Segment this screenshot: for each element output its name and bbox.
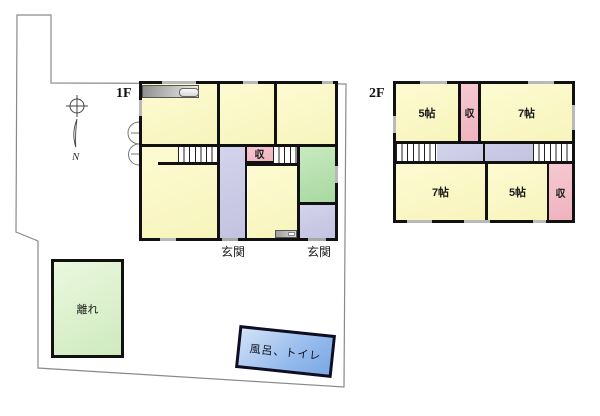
floor2-room-7jo-sw: 7帖 (396, 164, 485, 220)
annex-hanare: 離れ (51, 259, 124, 358)
window (528, 81, 554, 84)
compass-north-label: N (71, 151, 80, 163)
floor2-storage-top: 収 (461, 84, 478, 141)
north-needle (74, 119, 77, 147)
window (420, 81, 447, 84)
floor2-room-5jo-se: 5帖 (488, 164, 547, 220)
floor1-stairs-left (178, 146, 217, 162)
window (335, 166, 338, 183)
wall (485, 164, 488, 220)
floor1-room-bottom-middle (248, 166, 297, 238)
window (464, 220, 490, 223)
floor2-stairs-right (533, 144, 572, 161)
window (139, 100, 142, 116)
floor1-room-top-middle (220, 84, 274, 144)
floor2-room-7jo-ne: 7帖 (481, 84, 572, 141)
floor1-stairs-right (273, 146, 297, 163)
wall (217, 84, 220, 147)
wall (297, 144, 300, 238)
storage-label: 収 (465, 105, 475, 120)
room-label: 5帖 (509, 184, 526, 200)
floor2-tag: 2F (369, 86, 385, 102)
floor2-plan: 5帖 収 7帖 7帖 5帖 収 (393, 81, 575, 223)
storage-label: 収 (556, 185, 566, 200)
floor1-plan: 収 (139, 81, 338, 241)
floor1-storage-label: 収 (255, 146, 265, 161)
room-label: 5帖 (418, 105, 435, 121)
floor2-stairs-left (396, 144, 437, 161)
stairs-handrail-wall (158, 162, 217, 165)
entrance-label-left: 玄関 (211, 243, 255, 260)
kitchen-sink-icon (179, 88, 199, 97)
window (572, 105, 575, 130)
floor1-entrance-hall (300, 205, 335, 238)
annex-label: 離れ (77, 301, 99, 317)
window (160, 238, 176, 241)
window (393, 116, 396, 133)
window (533, 220, 546, 223)
wall (142, 144, 335, 147)
wall (483, 144, 485, 161)
shoe-cabinet (275, 230, 297, 238)
entrance-door-gap (222, 238, 238, 241)
room-label: 7帖 (432, 184, 449, 200)
shoe-cabinet-door (288, 232, 295, 236)
floor2-room-5jo-nw: 5帖 (396, 84, 458, 141)
entrance-door-gap (308, 238, 326, 241)
wall (478, 84, 481, 141)
room-label: 7帖 (518, 105, 535, 121)
window (243, 81, 258, 84)
floor1-storage: 収 (246, 145, 273, 161)
wall (274, 84, 277, 144)
floor2-storage-se: 収 (549, 164, 572, 220)
window (407, 220, 432, 223)
wall (547, 164, 549, 220)
wall (396, 161, 572, 164)
entrance-label-right: 玄関 (297, 243, 341, 260)
floor1-room-top-right (277, 84, 335, 144)
window (322, 81, 333, 84)
floor1-corridor (220, 147, 245, 238)
compass-icon (66, 95, 88, 147)
floor1-tag: 1F (116, 86, 132, 102)
wall (300, 202, 335, 205)
window (162, 81, 196, 84)
floor-plan-page: N 1F 収 (0, 0, 600, 416)
wall (217, 147, 220, 238)
wall (246, 163, 300, 166)
kitchen-counter (142, 85, 199, 98)
bath-label: 風呂、トイレ (249, 340, 322, 363)
floor2-corridor (437, 144, 533, 161)
floor1-tatami-room (300, 144, 335, 202)
wall (458, 84, 461, 141)
